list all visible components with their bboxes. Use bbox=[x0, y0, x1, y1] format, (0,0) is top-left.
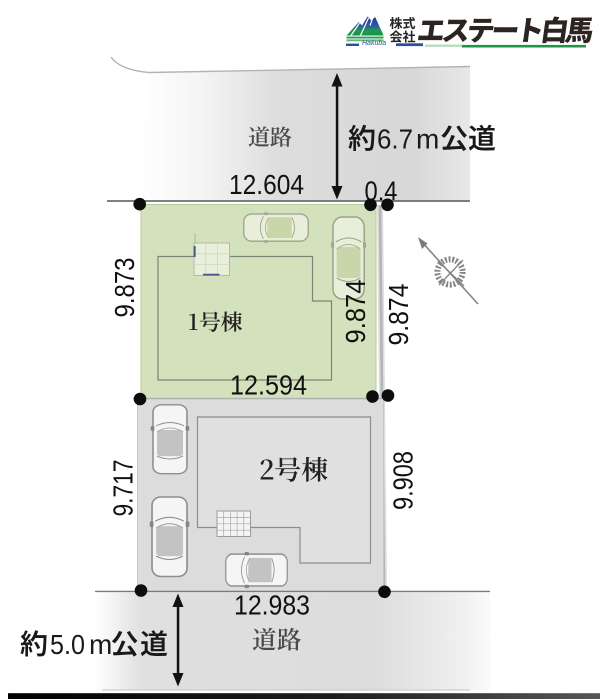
svg-text:9.874: 9.874 bbox=[383, 284, 414, 346]
svg-text:12.594: 12.594 bbox=[230, 370, 307, 401]
svg-text:9.873: 9.873 bbox=[109, 258, 140, 318]
svg-text:m: m bbox=[416, 124, 439, 155]
svg-text:9.908: 9.908 bbox=[388, 451, 419, 510]
svg-text:6.7: 6.7 bbox=[377, 124, 413, 155]
svg-text:5.0: 5.0 bbox=[50, 629, 85, 660]
svg-text:Hakuba: Hakuba bbox=[362, 40, 386, 47]
svg-text:12.983: 12.983 bbox=[234, 590, 310, 621]
svg-text:m: m bbox=[89, 629, 112, 660]
svg-text:12.604: 12.604 bbox=[229, 169, 304, 200]
svg-text:9.874: 9.874 bbox=[340, 280, 371, 344]
svg-text:9.717: 9.717 bbox=[108, 460, 139, 517]
